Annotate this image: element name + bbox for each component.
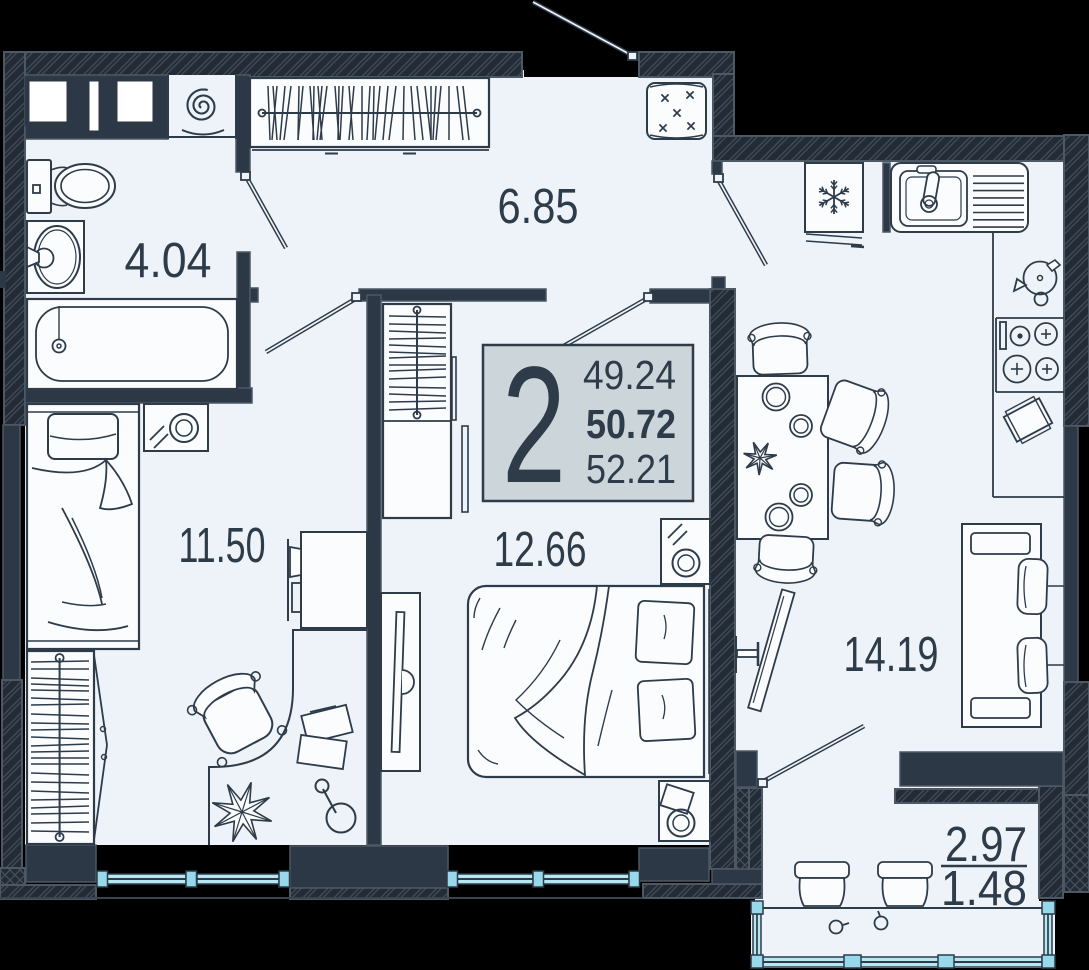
svg-text:1.48: 1.48 [941, 862, 1027, 916]
svg-text:14.19: 14.19 [844, 628, 939, 682]
svg-text:4.04: 4.04 [125, 234, 212, 288]
svg-text:52.21: 52.21 [586, 446, 676, 492]
svg-text:50.72: 50.72 [586, 401, 676, 447]
svg-text:6.85: 6.85 [498, 180, 579, 234]
svg-text:11.50: 11.50 [179, 519, 266, 573]
svg-text:12.66: 12.66 [494, 523, 587, 577]
svg-text:2: 2 [502, 333, 566, 518]
svg-text:49.24: 49.24 [583, 352, 676, 398]
